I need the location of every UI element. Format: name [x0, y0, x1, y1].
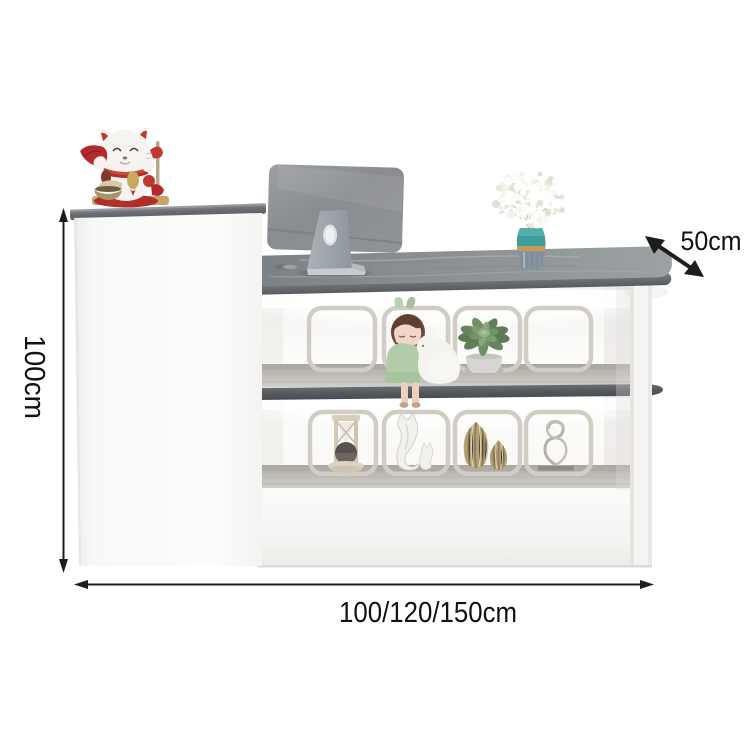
- svg-text:50cm: 50cm: [681, 226, 742, 256]
- svg-text:100/120/150cm: 100/120/150cm: [339, 597, 517, 629]
- svg-text:100cm: 100cm: [18, 335, 50, 419]
